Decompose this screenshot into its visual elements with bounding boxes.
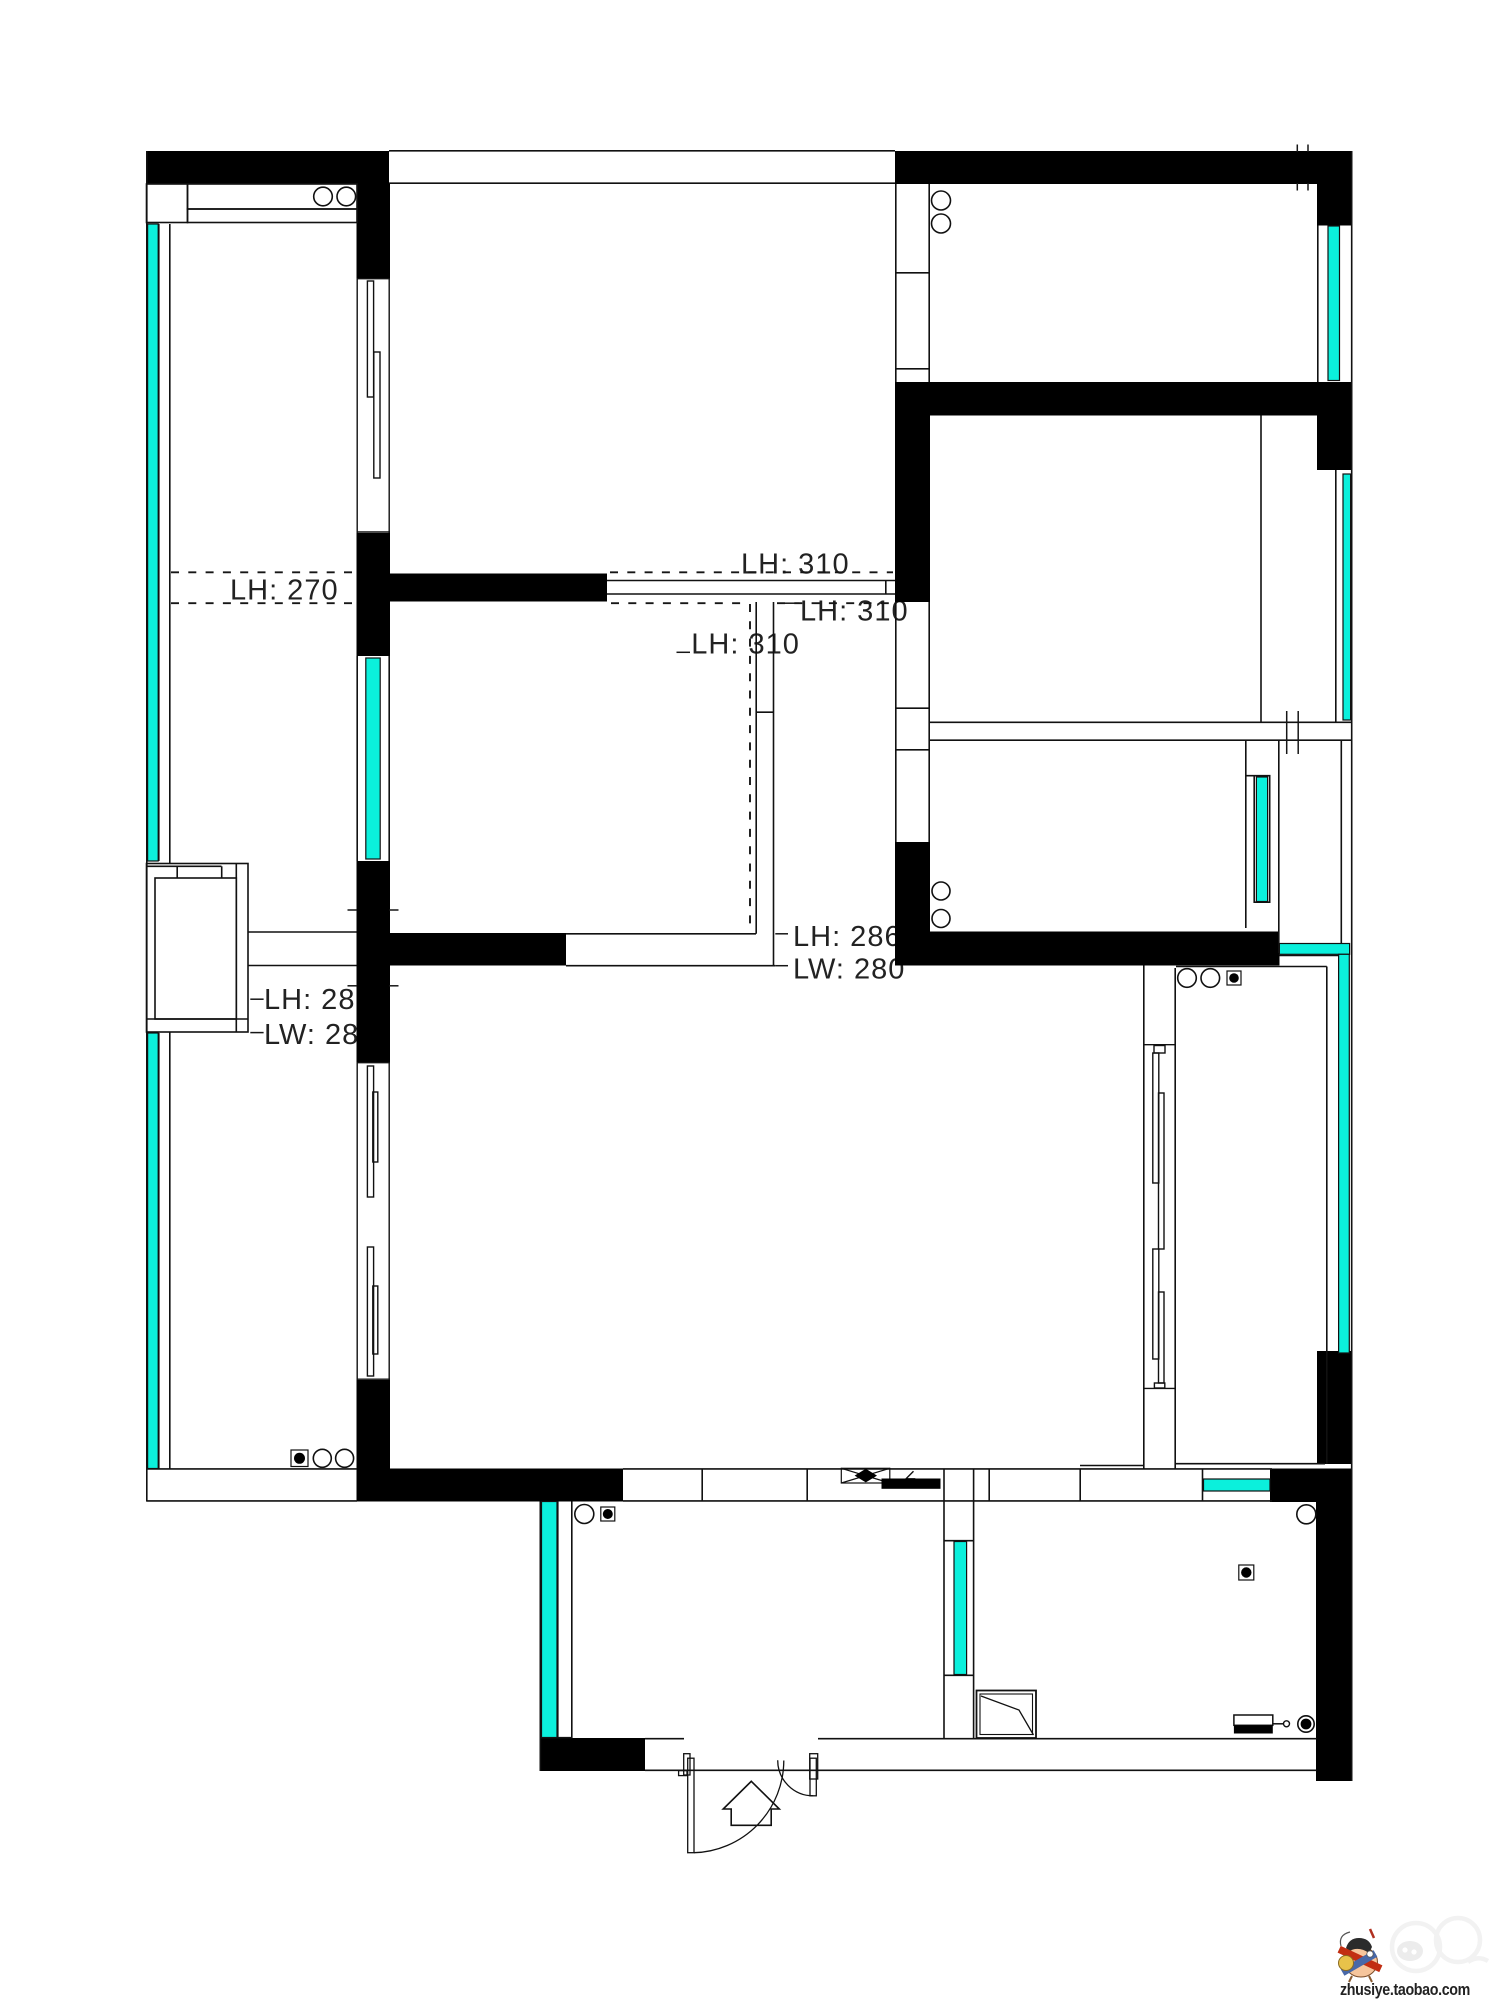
svg-text:LH: 286: LH: 286 — [793, 921, 902, 953]
svg-text:LW: 280: LW: 280 — [793, 954, 905, 986]
svg-text:zhusiye.taobao.com: zhusiye.taobao.com — [1340, 1981, 1470, 1999]
svg-text:LH: 310: LH: 310 — [800, 595, 909, 627]
svg-text:LH: 310: LH: 310 — [741, 549, 850, 581]
svg-text:LH: 280: LH: 280 — [264, 984, 373, 1016]
svg-text:LH: 270: LH: 270 — [230, 575, 339, 607]
svg-text:LH: 310: LH: 310 — [691, 628, 800, 660]
